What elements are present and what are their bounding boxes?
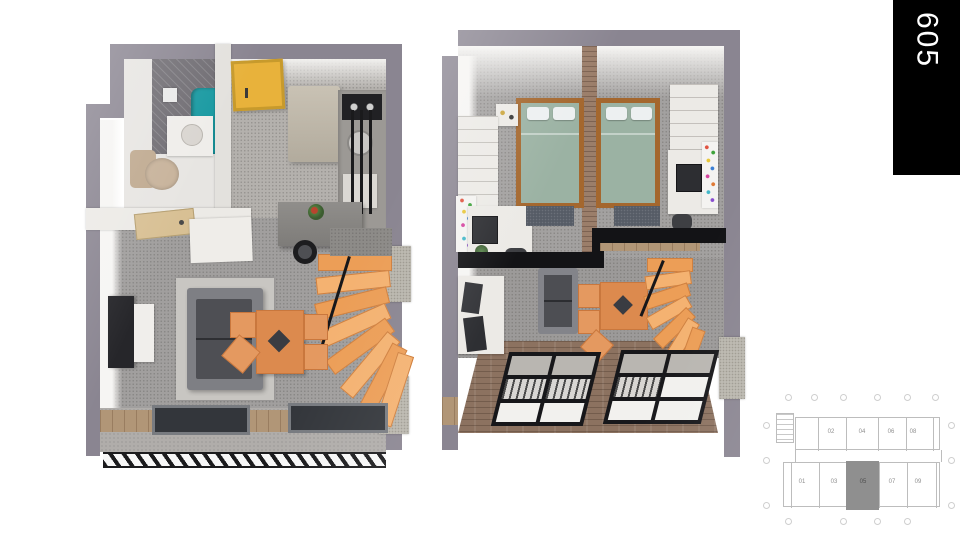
grid-bubble — [785, 518, 792, 525]
refrigerator — [288, 86, 340, 162]
grid-bubble — [932, 394, 939, 401]
window-pane — [507, 356, 552, 375]
keyplan-unit-label-highlighted: 05 — [855, 478, 871, 486]
wall-left — [86, 104, 100, 456]
window-pane — [666, 354, 714, 373]
window-pane — [502, 379, 547, 398]
upper-floor-plan — [435, 25, 747, 517]
table-tray — [268, 330, 291, 353]
grid-bubble — [874, 518, 881, 525]
stair-landing — [330, 228, 392, 256]
keyplan-wall — [846, 418, 847, 451]
balcony-planter — [288, 403, 388, 433]
keyplan-wall — [879, 463, 880, 508]
dining-stool — [230, 312, 256, 338]
monitor — [676, 164, 702, 192]
keyplan-wall — [819, 463, 820, 508]
grid-bubble — [840, 394, 847, 401]
keyplan-wall — [933, 418, 934, 451]
tv — [108, 296, 134, 368]
grid-bubble — [904, 518, 911, 525]
window-pane — [614, 377, 662, 396]
window-pane — [551, 356, 596, 375]
window-pane — [661, 377, 709, 396]
presentation-sheet: 605 02 04 06 08 01 03 0 — [0, 0, 960, 540]
table-tray — [613, 295, 633, 315]
unit-number-banner: 605 — [893, 0, 960, 175]
keyplan-wall — [878, 418, 879, 451]
pillow — [631, 107, 652, 120]
grid-bubble — [904, 394, 911, 401]
keyplan-wall — [936, 463, 937, 508]
keyplan-unit-label: 02 — [823, 428, 839, 436]
wall-top — [458, 30, 740, 46]
pillow — [553, 107, 575, 120]
sink-basin — [181, 124, 203, 146]
void-chair — [578, 284, 600, 308]
grid-bubble — [948, 502, 955, 509]
wall-top — [110, 44, 402, 59]
mezzanine-edge — [598, 228, 726, 243]
facade-window — [603, 350, 719, 424]
tv-console — [134, 304, 154, 362]
window-pane — [546, 379, 591, 398]
void-dining-table — [600, 282, 648, 330]
blanket-fold — [601, 133, 655, 135]
winder-stairs — [645, 256, 695, 346]
window-pane — [619, 354, 667, 373]
keyplan-unit-label: 06 — [883, 428, 899, 436]
grid-bubble — [785, 394, 792, 401]
unit-key-plan: 02 04 06 08 01 03 05 07 09 — [762, 390, 960, 532]
wall-left — [442, 56, 458, 450]
bedside-rug — [526, 206, 574, 226]
grid-bubble — [948, 422, 955, 429]
keyplan-unit-label: 04 — [854, 428, 870, 436]
grid-bubble — [874, 394, 881, 401]
wall-wood-cap — [442, 397, 458, 425]
concrete-pillar — [719, 337, 745, 399]
sofa — [187, 288, 263, 390]
grid-bubble — [763, 502, 770, 509]
balcony-railing — [103, 452, 386, 468]
headboard-shelf — [496, 104, 518, 126]
door-handle — [179, 220, 184, 225]
window-pane — [608, 401, 656, 420]
mezzanine-wood-strip — [600, 243, 700, 251]
keyplan-unit-label: 03 — [826, 478, 842, 486]
toilet-bowl — [145, 158, 179, 190]
monitor — [472, 216, 498, 244]
flower-pot — [308, 204, 324, 220]
keyplan-unit-label: 01 — [794, 478, 810, 486]
window-pane — [496, 403, 541, 422]
lower-floor-plan — [75, 28, 410, 513]
void-sofa-split — [544, 300, 572, 302]
stair-step — [318, 254, 392, 271]
dining-table — [256, 310, 304, 374]
grid-bubble — [948, 457, 955, 464]
grid-bubble — [811, 394, 818, 401]
keyplan-stair-core — [776, 413, 794, 443]
entry-door-yellow — [231, 59, 286, 112]
dining-chair — [304, 314, 328, 340]
facade-window — [491, 352, 601, 426]
shower-head — [163, 88, 177, 102]
grid-bubble — [840, 518, 847, 525]
sticky-notes — [702, 142, 718, 208]
keyplan-wall — [907, 463, 908, 508]
keyplan-unit-label: 08 — [905, 428, 921, 436]
dining-chair — [304, 344, 328, 370]
window-pane — [655, 401, 703, 420]
grid-bubble — [763, 422, 770, 429]
bed-1 — [516, 98, 584, 208]
grid-bubble — [763, 457, 770, 464]
keyplan-wall — [791, 463, 792, 508]
bathroom-divider-wall — [215, 44, 231, 234]
pillow — [606, 107, 627, 120]
bar-stool — [293, 240, 317, 264]
unit-number: 605 — [910, 12, 944, 68]
bedside-rug — [614, 206, 660, 226]
bed-2 — [596, 98, 660, 208]
blanket-fold — [521, 133, 579, 135]
pillow — [527, 107, 549, 120]
picture-frame — [463, 316, 487, 352]
entry-door-handle — [245, 88, 248, 98]
brick-partition — [582, 46, 597, 256]
window-pane — [540, 403, 585, 422]
void-sofa — [538, 268, 578, 334]
mezzanine-edge — [458, 252, 600, 268]
balcony-planter — [152, 405, 250, 435]
keyplan-unit-label: 07 — [884, 478, 900, 486]
wardrobe-right — [670, 84, 718, 150]
half-wall — [189, 217, 252, 263]
keyplan-wall — [818, 418, 819, 451]
keyplan-unit-label: 09 — [910, 478, 926, 486]
wall-shelf-black — [351, 110, 377, 214]
wall-right — [724, 30, 740, 370]
